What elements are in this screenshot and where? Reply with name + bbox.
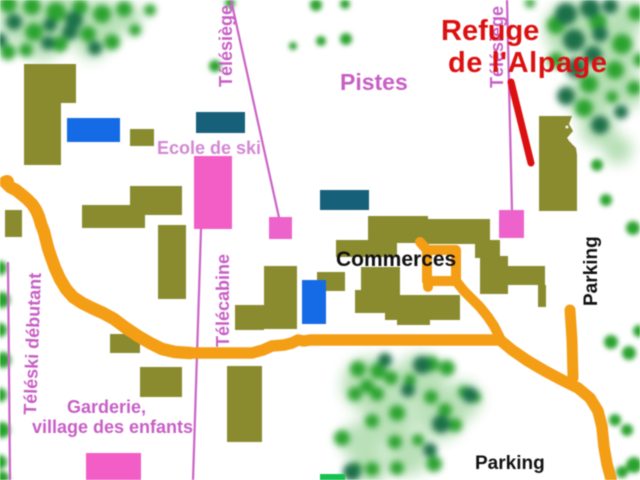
- svg-text:Télécabine: Télécabine: [213, 254, 233, 347]
- svg-text:Télésiège: Télésiège: [216, 5, 236, 87]
- svg-text:Refuge: Refuge: [441, 15, 539, 47]
- svg-text:Commerces: Commerces: [336, 248, 456, 271]
- svg-text:de l'Alpage: de l'Alpage: [448, 47, 608, 79]
- svg-text:Garderie,: Garderie,: [67, 397, 146, 417]
- svg-text:village des enfants: village des enfants: [32, 417, 193, 437]
- svg-text:Parking: Parking: [581, 236, 602, 306]
- svg-text:Ecole de ski: Ecole de ski: [157, 138, 261, 158]
- svg-text:Parking: Parking: [475, 453, 545, 474]
- svg-text:Pistes: Pistes: [340, 69, 408, 95]
